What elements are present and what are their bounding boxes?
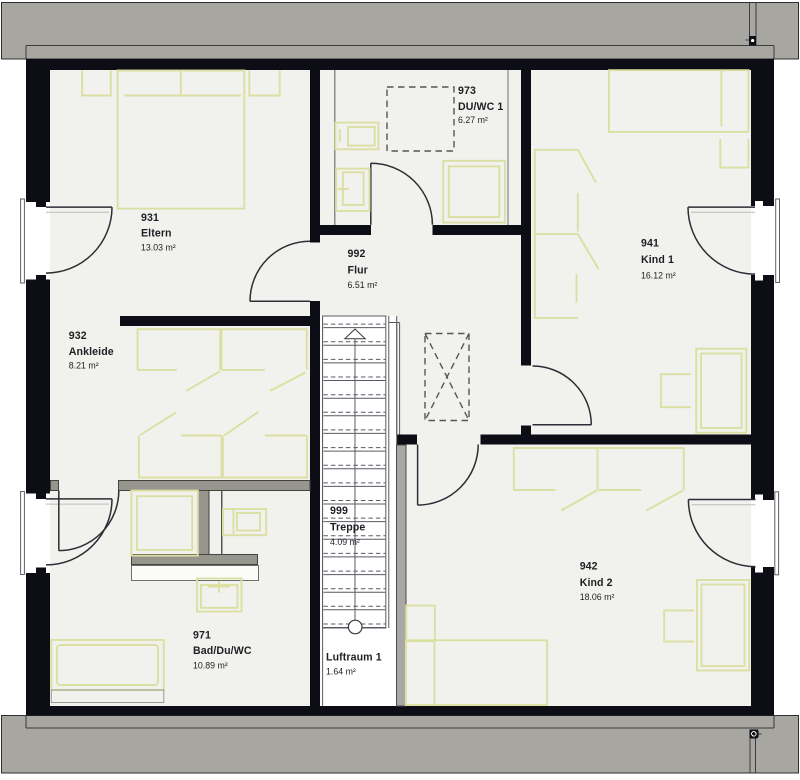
svg-text:942: 942: [580, 561, 598, 573]
svg-text:Eltern: Eltern: [141, 228, 172, 240]
svg-text:Treppe: Treppe: [330, 522, 365, 534]
svg-text:6.27 m²: 6.27 m²: [458, 115, 488, 125]
svg-text:992: 992: [348, 248, 366, 260]
svg-text:999: 999: [330, 505, 348, 517]
svg-text:16.12 m²: 16.12 m²: [641, 271, 676, 281]
svg-text:DU/WC 1: DU/WC 1: [458, 101, 503, 113]
svg-text:6.51 m²: 6.51 m²: [348, 280, 378, 290]
svg-text:Kind 1: Kind 1: [641, 254, 674, 266]
svg-text:Flur: Flur: [348, 265, 368, 277]
svg-text:Ankleide: Ankleide: [69, 346, 114, 358]
svg-text:13.03 m²: 13.03 m²: [141, 243, 176, 253]
svg-text:18.06 m²: 18.06 m²: [580, 592, 615, 602]
svg-text:Kind 2: Kind 2: [580, 577, 613, 589]
svg-text:932: 932: [69, 330, 87, 342]
svg-text:8.21 m²: 8.21 m²: [69, 361, 99, 371]
svg-text:971: 971: [193, 630, 211, 642]
svg-text:931: 931: [141, 212, 159, 224]
svg-text:10.89 m²: 10.89 m²: [193, 661, 228, 671]
svg-text:973: 973: [458, 85, 476, 97]
svg-text:941: 941: [641, 238, 659, 250]
svg-text:4.09 m²: 4.09 m²: [330, 537, 360, 547]
svg-text:Bad/Du/WC: Bad/Du/WC: [193, 645, 252, 657]
svg-text:1.64 m²: 1.64 m²: [326, 667, 356, 677]
svg-text:Luftraum 1: Luftraum 1: [326, 652, 382, 664]
